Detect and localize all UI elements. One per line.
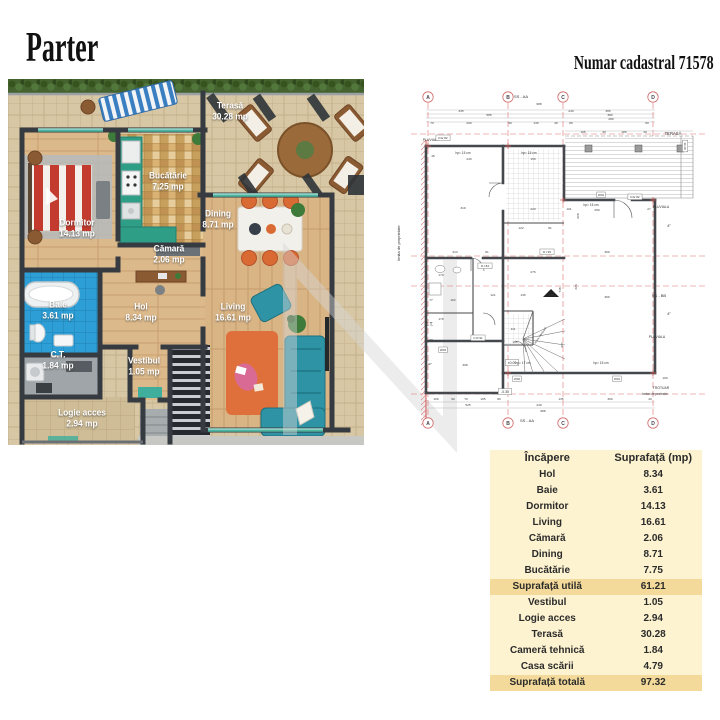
svg-text:60: 60: [645, 121, 649, 125]
svg-text:988: 988: [540, 409, 545, 413]
cell-area: 1.84: [604, 645, 702, 656]
svg-text:D: D: [651, 421, 655, 427]
svg-text:121: 121: [490, 293, 495, 297]
svg-text:179: 179: [438, 273, 443, 277]
svg-text:W02: W02: [514, 377, 521, 381]
table-row: Terasă30.28: [490, 627, 702, 643]
svg-text:525: 525: [465, 403, 470, 407]
svg-text:hp= 15 cm: hp= 15 cm: [456, 151, 471, 155]
svg-text:100: 100: [433, 397, 438, 401]
svg-text:280: 280: [608, 117, 613, 121]
cell-room: Dormitor: [490, 501, 604, 512]
svg-text:105: 105: [480, 397, 485, 401]
page: { "header": { "title": "Parter", "cadast…: [0, 0, 720, 720]
svg-text:SS - AA: SS - AA: [520, 418, 534, 423]
table-row: Dining8.71: [490, 546, 702, 562]
svg-text:136: 136: [520, 293, 525, 297]
svg-text:30: 30: [643, 130, 647, 134]
svg-text:D.E 82: D.E 82: [630, 195, 640, 199]
svg-text:335: 335: [458, 109, 463, 113]
svg-text:27: 27: [647, 207, 651, 211]
svg-text:240: 240: [568, 109, 573, 113]
page-title: Parter: [26, 24, 98, 72]
svg-text:4°: 4°: [667, 223, 671, 228]
cell-area: 61.21: [604, 581, 702, 592]
svg-text:180: 180: [621, 130, 626, 134]
svg-text:C.T.: C.T.: [425, 322, 434, 328]
svg-text:97: 97: [428, 362, 432, 366]
svg-text:B: B: [506, 421, 510, 427]
svg-text:200: 200: [466, 121, 471, 125]
svg-text:240: 240: [536, 403, 541, 407]
svg-text:beton de protecție: beton de protecție: [642, 392, 668, 396]
table-row: Bucătărie7.75: [490, 562, 702, 578]
table-row: Logie acces2.94: [490, 611, 702, 627]
svg-text:81: 81: [485, 250, 489, 254]
svg-text:hp= 15 cm: hp= 15 cm: [594, 361, 609, 365]
svg-text:250: 250: [594, 208, 599, 212]
svg-text:165: 165: [580, 130, 585, 134]
floor-plan-graphic: [8, 79, 364, 445]
cadastral-plan: AABBCCDD limita de proprietateSS - AASS …: [393, 83, 720, 445]
svg-text:W04: W04: [598, 193, 605, 197]
floor-plan-render: [8, 79, 364, 445]
cell-area: 30.28: [604, 629, 702, 640]
svg-text:hp= 15 cm: hp= 15 cm: [584, 203, 599, 207]
svg-text:111: 111: [511, 327, 516, 331]
cell-area: 1.05: [604, 597, 702, 608]
svg-text:988: 988: [536, 102, 541, 106]
cadastral-plan-graphic: AABBCCDD limita de proprietateSS - AASS …: [393, 83, 720, 445]
svg-text:230: 230: [466, 157, 471, 161]
cell-area: 3.61: [604, 485, 702, 496]
cell-room: Casa scării: [490, 661, 604, 672]
table-row: Vestibul1.05: [490, 595, 702, 611]
table-row: Cămară2.06: [490, 530, 702, 546]
cell-area: 8.71: [604, 549, 702, 560]
floor-logie: [22, 397, 135, 442]
svg-text:W03: W03: [440, 348, 447, 352]
cell-area: 2.06: [604, 533, 702, 544]
svg-text:179: 179: [438, 317, 443, 321]
cell-room: Cameră tehnică: [490, 645, 604, 656]
svg-text:748: 748: [558, 287, 562, 292]
cell-room: Baie: [490, 485, 604, 496]
table-row: Suprafață utilă61.21: [490, 579, 702, 595]
svg-text:45: 45: [431, 154, 435, 158]
svg-text:hp= 17 cm: hp= 17 cm: [516, 361, 531, 365]
svg-text:319: 319: [460, 206, 465, 210]
table-row: Casa scării4.79: [490, 659, 702, 675]
svg-text:165: 165: [512, 340, 517, 344]
svg-text:77: 77: [429, 298, 433, 302]
svg-text:70: 70: [464, 397, 468, 401]
svg-text:B: B: [506, 95, 510, 101]
table-header: ÎncăpereSuprafață (mp): [490, 450, 702, 466]
cell-room: Suprafață utilă: [490, 581, 604, 592]
svg-text:223: 223: [574, 284, 578, 289]
cell-area: 2.94: [604, 613, 702, 624]
svg-text:81: 81: [548, 226, 552, 230]
svg-text:80: 80: [569, 121, 573, 125]
svg-text:122: 122: [518, 226, 523, 230]
table-row: Cameră tehnică1.84: [490, 643, 702, 659]
svg-text:limita de proprietate: limita de proprietate: [396, 225, 401, 261]
table-row: Baie3.61: [490, 482, 702, 498]
cell-room: Dining: [490, 549, 604, 560]
cell-area: 8.34: [604, 469, 702, 480]
svg-text:A: A: [426, 95, 430, 101]
svg-text:30.28: 30.28: [683, 143, 687, 150]
svg-text:TROTUAR: TROTUAR: [653, 386, 670, 390]
svg-text:C.R 91: C.R 91: [473, 336, 483, 340]
cell-room: Logie acces: [490, 613, 604, 624]
svg-text:W01: W01: [614, 377, 621, 381]
svg-text:106: 106: [548, 293, 553, 297]
svg-text:C: C: [561, 421, 565, 427]
table-row: Dormitor14.13: [490, 498, 702, 514]
svg-text:369: 369: [604, 250, 609, 254]
cell-room: Bucătărie: [490, 565, 604, 576]
svg-text:220: 220: [530, 207, 535, 211]
svg-text:585: 585: [486, 113, 491, 117]
svg-text:608: 608: [576, 213, 580, 218]
table-row: Suprafață totală97.32: [490, 675, 702, 691]
svg-text:C: C: [561, 95, 565, 101]
svg-text:369: 369: [604, 295, 609, 299]
svg-text:SS - BB: SS - BB: [652, 293, 667, 298]
svg-text:4°: 4°: [667, 311, 671, 316]
svg-text:70: 70: [430, 121, 434, 125]
svg-text:207: 207: [560, 342, 564, 347]
cell-room: Terasă: [490, 629, 604, 640]
svg-text:TERASĂ: TERASĂ: [665, 131, 682, 136]
cell-area: 16.61: [604, 517, 702, 528]
cell-area: 4.79: [604, 661, 702, 672]
svg-text:90: 90: [508, 121, 512, 125]
svg-text:40: 40: [554, 121, 558, 125]
svg-text:40: 40: [648, 397, 652, 401]
cell-area: 14.13: [604, 501, 702, 512]
svg-text:D.I 95: D.I 95: [543, 250, 551, 254]
table-row: Living16.61: [490, 514, 702, 530]
svg-text:30: 30: [602, 130, 606, 134]
table-row: Hol8.34: [490, 466, 702, 482]
svg-text:314: 314: [452, 250, 457, 254]
col-header-area: Suprafață (mp): [604, 452, 702, 464]
svg-text:102: 102: [450, 298, 455, 302]
svg-text:hp= 15 cm: hp= 15 cm: [522, 151, 537, 155]
svg-text:80: 80: [497, 397, 501, 401]
cell-room: Cămară: [490, 533, 604, 544]
svg-text:130: 130: [533, 121, 538, 125]
svg-text:D: D: [651, 95, 655, 101]
svg-text:SS - AA: SS - AA: [514, 94, 528, 99]
area-table: ÎncăpereSuprafață (mp)Hol8.34Baie3.61Dor…: [490, 450, 702, 691]
cell-room: Vestibul: [490, 597, 604, 608]
svg-text:300: 300: [607, 397, 612, 401]
svg-text:D.I 84: D.I 84: [481, 264, 489, 268]
svg-text:150: 150: [530, 157, 535, 161]
hedge-strip: [8, 79, 364, 93]
svg-text:101: 101: [566, 207, 571, 211]
svg-text:100: 100: [662, 376, 667, 380]
cell-room: Living: [490, 517, 604, 528]
svg-text:PLUVIALA: PLUVIALA: [653, 205, 670, 209]
cell-area: 97.32: [604, 677, 702, 688]
svg-text:PLUVIALA: PLUVIALA: [649, 335, 666, 339]
svg-text:276: 276: [530, 270, 535, 274]
svg-text:77: 77: [429, 338, 433, 342]
cell-room: Suprafață totală: [490, 677, 604, 688]
svg-text:-0.35: -0.35: [501, 390, 509, 394]
svg-text:135: 135: [558, 397, 563, 401]
svg-text:A: A: [426, 421, 430, 427]
col-header-room: Încăpere: [490, 452, 604, 464]
cell-room: Hol: [490, 469, 604, 480]
svg-text:308: 308: [462, 363, 467, 367]
svg-text:90: 90: [451, 397, 455, 401]
cell-area: 7.75: [604, 565, 702, 576]
svg-text:D.E 82: D.E 82: [438, 136, 448, 140]
cadastral-number: Numar cadastral 71578: [574, 52, 714, 75]
